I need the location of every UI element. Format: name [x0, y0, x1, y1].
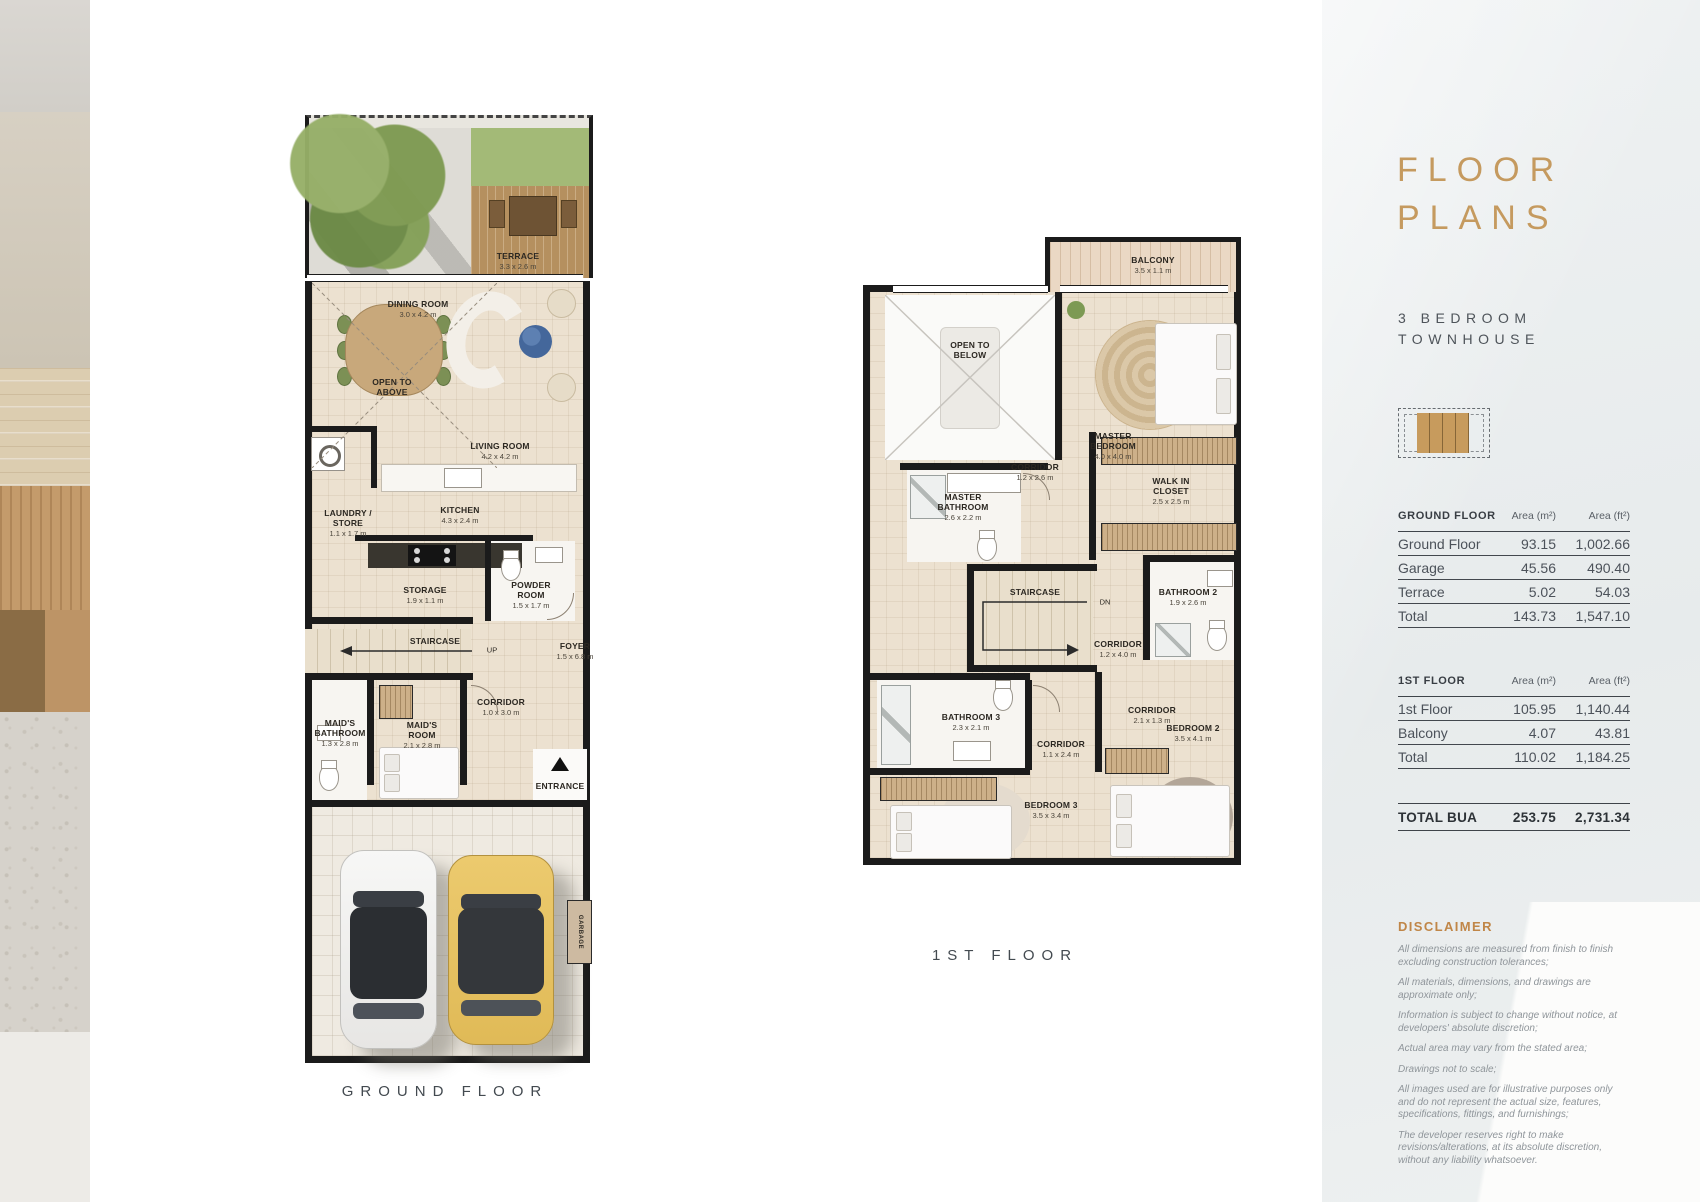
stair-up-arrow [340, 644, 475, 658]
stair-direction-dn: DN [1100, 598, 1111, 607]
room-label-bedroom3: BEDROOM 3 3.5 x 3.4 m [1024, 800, 1077, 820]
table-header-title: 1ST FLOOR [1398, 675, 1496, 687]
wall-segment [460, 680, 467, 785]
room-label-storage: STORAGE 1.9 x 1.1 m [403, 585, 446, 605]
bed-icon [1110, 785, 1230, 857]
first-floor-plan: BALCONY 3.5 x 1.1 m OPEN TO BELOW MASTER… [855, 225, 1247, 995]
wall-segment [870, 673, 1030, 680]
disclaimer-item: Actual area may vary from the stated are… [1398, 1043, 1620, 1056]
room-label-staircase: STAIRCASE [410, 636, 460, 646]
armchair [547, 289, 576, 318]
wall-segment [1143, 555, 1241, 562]
garbage-box: GARBAGE [567, 900, 592, 964]
table-row: 1st Floor 105.95 1,140.44 [1398, 697, 1630, 721]
page-subtitle: 3 BEDROOM TOWNHOUSE [1398, 308, 1540, 350]
disclaimer-item: All dimensions are measured from finish … [1398, 944, 1620, 969]
texture-beige-stone [0, 112, 90, 368]
first-floor-caption: 1ST FLOOR [855, 947, 1155, 964]
sidebar: FLOOR PLANS 3 BEDROOM TOWNHOUSE GROUND F… [1322, 0, 1700, 1202]
wall-segment [1143, 555, 1150, 660]
page-subtitle-line2: TOWNHOUSE [1398, 329, 1540, 350]
pillow [384, 754, 400, 772]
room-label-corridor-d: CORRIDOR 1.1 x 2.4 m [1037, 739, 1085, 759]
unit-location-icon-highlight [1417, 413, 1469, 453]
table-row: Balcony 4.07 43.81 [1398, 721, 1630, 745]
table-header-ft2: Area (ft²) [1556, 675, 1630, 687]
open-to-below-cross [885, 295, 1055, 460]
wall-segment [967, 665, 1097, 672]
wall-segment [485, 535, 491, 621]
disclaimer-item: The developer reserves right to make rev… [1398, 1130, 1620, 1168]
room-label-balcony: BALCONY 3.5 x 1.1 m [1131, 255, 1174, 275]
white-car [340, 850, 437, 1049]
stair-down-arrow [975, 595, 1095, 657]
page-title-line1: FLOOR [1397, 146, 1564, 194]
room-label-master-bathroom: MASTER BATHROOM 2.6 x 2.2 m [918, 492, 1008, 522]
wardrobe-icon [880, 777, 997, 801]
window-band [893, 285, 1048, 293]
table-header: 1ST FLOOR Area (m²) Area (ft²) [1398, 675, 1630, 697]
outdoor-chair [489, 200, 505, 228]
armchair [547, 373, 576, 402]
room-label-powder: POWDER ROOM 1.5 x 1.7 m [507, 580, 555, 610]
room-label-kitchen: KITCHEN 4.3 x 2.4 m [440, 505, 479, 525]
car-roof [458, 908, 544, 994]
bed-icon [890, 805, 1012, 859]
toilet-icon [993, 685, 1013, 711]
pillow [1216, 334, 1231, 370]
stove-icon [408, 545, 456, 566]
entrance-arrow-icon [551, 757, 569, 771]
disclaimer-item: All images used are for illustrative pur… [1398, 1084, 1620, 1122]
wall-segment [870, 768, 1030, 775]
outdoor-table [509, 196, 557, 236]
sink-icon [1207, 570, 1233, 587]
page-title: FLOOR PLANS [1397, 146, 1564, 242]
room-label-terrace: TERRACE 3.3 x 2.6 m [497, 251, 540, 271]
wall-segment [967, 564, 974, 672]
round-side-table [519, 325, 552, 358]
room-label-living: LIVING ROOM 4.2 x 4.2 m [470, 441, 529, 461]
rear-window [461, 1000, 541, 1016]
window-band [1060, 285, 1228, 293]
shower-icon [1155, 623, 1191, 657]
bed-icon [379, 747, 459, 799]
page-title-line2: PLANS [1397, 194, 1564, 242]
texture-white-stone [0, 1032, 90, 1202]
pillow [1116, 794, 1132, 818]
pillow [896, 833, 912, 852]
toilet-icon [501, 555, 521, 581]
room-label-bedroom2: BEDROOM 2 3.5 x 4.1 m [1166, 723, 1219, 743]
wardrobe-icon [1105, 748, 1169, 774]
table-row: Total 143.73 1,547.10 [1398, 604, 1630, 628]
texture-tan-wood [0, 486, 90, 610]
room-label-corridor-b: CORRIDOR 1.2 x 4.0 m [1094, 639, 1142, 659]
wall-segment [371, 426, 377, 488]
plant-icon [1067, 301, 1085, 319]
texture-gray-stone [0, 0, 90, 112]
table-header: GROUND FLOOR Area (m²) Area (ft²) [1398, 510, 1630, 532]
ground-floor-caption: GROUND FLOOR [295, 1083, 595, 1100]
pillow [384, 774, 400, 792]
room-label-foyer: FOYER 1.5 x 6.8 m [553, 641, 597, 661]
room-label-laundry: LAUNDRY / STORE 1.1 x 1.7 m [321, 508, 375, 538]
disclaimer-item: All materials, dimensions, and drawings … [1398, 977, 1620, 1002]
disclaimer-text: All dimensions are measured from finish … [1398, 944, 1620, 1175]
room-label-staircase-f: STAIRCASE [1010, 587, 1060, 597]
wall-segment [967, 564, 1097, 571]
wall-segment [305, 426, 377, 432]
outdoor-chair [561, 200, 577, 228]
sink-icon [535, 547, 563, 563]
table-row: Garage 45.56 490.40 [1398, 556, 1630, 580]
table-header-ft2: Area (ft²) [1556, 510, 1630, 522]
toilet-icon [319, 765, 339, 791]
table-header-m2: Area (m²) [1496, 510, 1556, 522]
pillow [1116, 824, 1132, 848]
windshield [353, 891, 424, 907]
kitchen-counter [368, 543, 522, 568]
car-roof [350, 907, 427, 999]
toilet-icon [1207, 625, 1227, 651]
wall-segment [305, 617, 473, 624]
tree [273, 93, 469, 289]
table-row: Total 110.02 1,184.25 [1398, 745, 1630, 769]
double-sink-icon [947, 473, 1021, 493]
room-label-dining: DINING ROOM 3.0 x 4.2 m [388, 299, 449, 319]
room-label-corridor-g: CORRIDOR 1.0 x 3.0 m [477, 697, 525, 717]
wall-segment [355, 535, 533, 541]
sink-icon [953, 741, 991, 761]
wardrobe-icon [1101, 523, 1237, 551]
table-row: Terrace 5.02 54.03 [1398, 580, 1630, 604]
room-label-open-to-above: OPEN TO ABOVE [365, 377, 419, 397]
room-label-master-bedroom: MASTER BEDROOM 4.0 x 4.0 m [1078, 431, 1148, 461]
stair-direction-up: UP [487, 646, 497, 655]
wardrobe-icon [379, 685, 413, 719]
table-row: Ground Floor 93.15 1,002.66 [1398, 532, 1630, 556]
window-band [307, 274, 583, 282]
texture-terrazzo [0, 712, 90, 1032]
disclaimer-item: Information is subject to change without… [1398, 1010, 1620, 1035]
grass-lawn [464, 128, 589, 190]
unit-location-icon [1398, 408, 1490, 458]
sink-icon [444, 468, 482, 488]
room-label-entrance: ENTRANCE [536, 781, 585, 791]
table-header-title: GROUND FLOOR [1398, 510, 1496, 522]
room-label-maids-room: MAID'S ROOM 2.1 x 2.8 m [399, 720, 445, 750]
room-label-maids-bathroom: MAID'S BATHROOM 1.3 x 2.8 m [314, 718, 366, 748]
room-label-open-to-below: OPEN TO BELOW [942, 340, 998, 360]
disclaimer-item: Drawings not to scale; [1398, 1064, 1620, 1077]
ground-floor-plan: TERRACE 3.3 x 2.6 m DINING ROOM 3.0 x 4.… [295, 85, 595, 1115]
room-label-bathroom2: BATHROOM 2 1.9 x 2.6 m [1158, 587, 1218, 607]
disclaimer-heading: DISCLAIMER [1398, 919, 1493, 934]
page-canvas: TERRACE 3.3 x 2.6 m DINING ROOM 3.0 x 4.… [0, 0, 1700, 1202]
room-label-corridor-a: CORRIDOR 1.2 x 2.6 m [1011, 462, 1059, 482]
bathtub-icon [881, 685, 911, 765]
pillow [896, 812, 912, 831]
texture-strip [0, 0, 90, 1202]
total-bua-row: TOTAL BUA 253.75 2,731.34 [1398, 803, 1630, 831]
first-floor-area-table: 1ST FLOOR Area (m²) Area (ft²) 1st Floor… [1398, 675, 1630, 769]
ground-floor-area-table: GROUND FLOOR Area (m²) Area (ft²) Ground… [1398, 510, 1630, 628]
pillow [1216, 378, 1231, 414]
room-label-bathroom3: BATHROOM 3 2.3 x 2.1 m [942, 712, 1001, 732]
rear-window [353, 1003, 424, 1019]
texture-light-wood [0, 368, 90, 486]
wall-segment [1055, 292, 1062, 460]
table-header-m2: Area (m²) [1496, 675, 1556, 687]
toilet-icon [977, 535, 997, 561]
wall-segment [367, 680, 374, 785]
texture-dark-wood [0, 610, 90, 712]
kitchen-island [381, 464, 577, 492]
wall-segment [305, 673, 473, 680]
yellow-car [448, 855, 554, 1045]
page-subtitle-line1: 3 BEDROOM [1398, 308, 1540, 329]
wall-segment [1095, 672, 1102, 772]
room-label-walk-in-closet: WALK IN CLOSET 2.5 x 2.5 m [1142, 476, 1200, 506]
bed-icon [1155, 323, 1237, 425]
wall-segment [1025, 680, 1032, 770]
